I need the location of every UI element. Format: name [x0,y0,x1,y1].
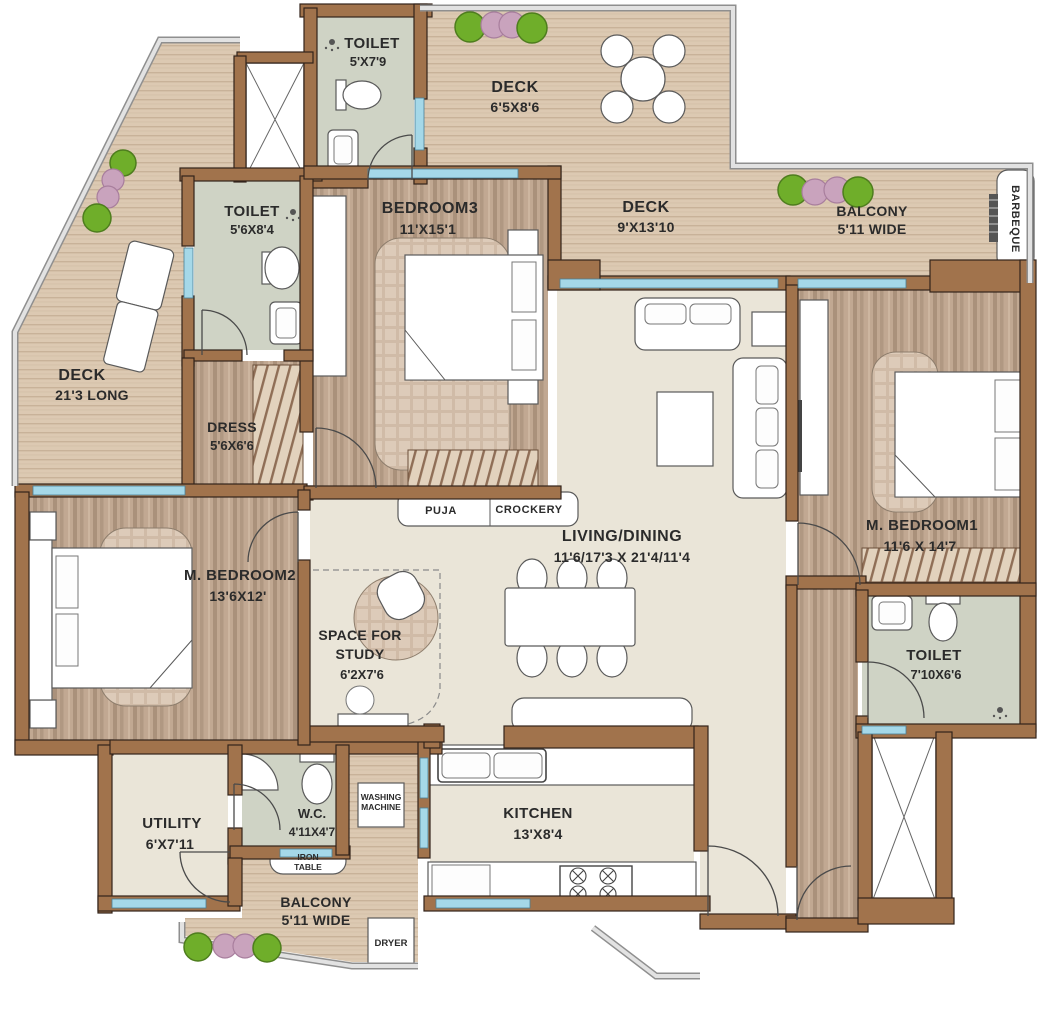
study-size: 6'2X7'6 [340,667,384,682]
toilet-left-name: TOILET [224,203,279,220]
toilet-left-sink-basin [276,308,296,338]
sofa-cushion [756,408,778,446]
bedroom3-pillow [512,262,536,312]
toilet-left-size: 5'6X8'4 [230,222,275,237]
sofa-cushion [756,450,778,488]
kitchen-size: 13'X8'4 [513,826,562,842]
bush-green [517,13,547,43]
wc-toilet-bowl [302,764,332,804]
barbeque-grill [989,194,998,242]
sink-basin [879,602,905,624]
m-bedroom2-pillow [56,614,78,666]
toilet-top-bowl [343,81,381,109]
dress-wardrobe [253,365,303,487]
floor-plan-drawing: TOILET 5'X7'9 DECK 6'5X8'6 DECK 9'X13'10… [0,0,1042,1015]
deck-right-size: 9'X13'10 [617,219,674,235]
wc-name: W.C. [298,806,326,821]
side-table [752,312,786,346]
deck-right-name: DECK [622,199,669,216]
balcony-top-size: 5'11 WIDE [837,221,906,237]
toilet-top-name: TOILET [344,35,399,52]
study-name-line1: SPACE FOR [318,627,401,643]
m-bedroom1-pillow [995,438,1023,490]
m-bedroom2-headboard [28,540,52,700]
wc-size: 4'11X4'7 [289,825,336,839]
toilet-m1-size: 7'10X6'6 [910,667,961,682]
m-bedroom1-size: 11'6 X 14'7 [883,538,956,554]
dining-table [505,588,635,646]
utility-name: UTILITY [142,815,201,832]
m-bedroom2-side-table [30,700,56,728]
bedroom3-pillow [512,320,536,370]
utility-size: 6'X7'11 [146,836,194,852]
sofa-cushion [756,366,778,404]
sofa-cushion [645,304,686,324]
m-bedroom1-tv-unit [800,300,828,495]
bedroom3-wardrobe [408,450,538,486]
study-desk [338,714,408,726]
crockery-label: CROCKERY [495,504,562,516]
bedroom3-side-table [508,378,538,404]
bedroom3-side-table [508,230,538,256]
sofa-cushion [690,304,731,324]
living-dining-size: 11'6/17'3 X 21'4/11'4 [554,549,690,565]
bush-green [184,933,212,961]
washing-machine-line1: WASHING [361,792,402,802]
m-bedroom1-name: M. BEDROOM1 [866,517,978,534]
dress-name: DRESS [207,419,257,435]
toilet-top-sink-basin [334,136,352,164]
living-dining-name: LIVING/DINING [562,528,682,545]
kitchen-name: KITCHEN [503,805,572,822]
m-bedroom2-name: M. BEDROOM2 [184,567,296,584]
dress-size: 5'6X6'6 [210,438,254,453]
deck-top-name: DECK [491,79,538,96]
deck-round-table [621,57,665,101]
dryer-label: DRYER [375,938,408,949]
floor-plan-page: TOILET 5'X7'9 DECK 6'5X8'6 DECK 9'X13'10… [0,0,1042,1015]
bush-green [253,934,281,962]
balcony-top-name: BALCONY [836,203,908,219]
iron-table-line1: IRON [297,852,318,862]
bedroom3-name: BEDROOM3 [382,200,478,217]
balcony-bottom-size: 5'11 WIDE [281,912,350,928]
balcony-bottom-name: BALCONY [280,894,352,910]
bush-green [83,204,111,232]
bush-green [455,12,485,42]
study-stool [346,686,374,714]
coffee-table [657,392,713,466]
m-bedroom1-pillow [995,380,1023,432]
toilet-left-bowl [265,247,299,289]
m-bedroom2-size: 13'6X12' [209,588,266,604]
deck-top-size: 6'5X8'6 [490,99,539,115]
deck-left-size: 21'3 LONG [55,387,129,403]
barbeque-label: BARBEQUE [1009,185,1021,253]
toilet-bowl [929,603,957,641]
washing-machine-line2: MACHINE [361,802,401,812]
m-bedroom2-pillow [56,556,78,608]
toilet-top-size: 5'X7'9 [350,54,387,69]
kitchen-sink-basin [494,753,542,778]
iron-table-line2: TABLE [294,862,322,872]
study-name-line2: STUDY [336,646,385,662]
kitchen-sink-basin [442,753,490,778]
bedroom3-size: 11'X15'1 [400,221,457,237]
corridor-floor [797,589,858,918]
toilet-m1-name: TOILET [906,647,961,664]
m-bedroom2-side-table [30,512,56,540]
bedroom3-cupboard [312,196,346,376]
puja-label: PUJA [425,505,457,517]
deck-left-name: DECK [58,367,105,384]
